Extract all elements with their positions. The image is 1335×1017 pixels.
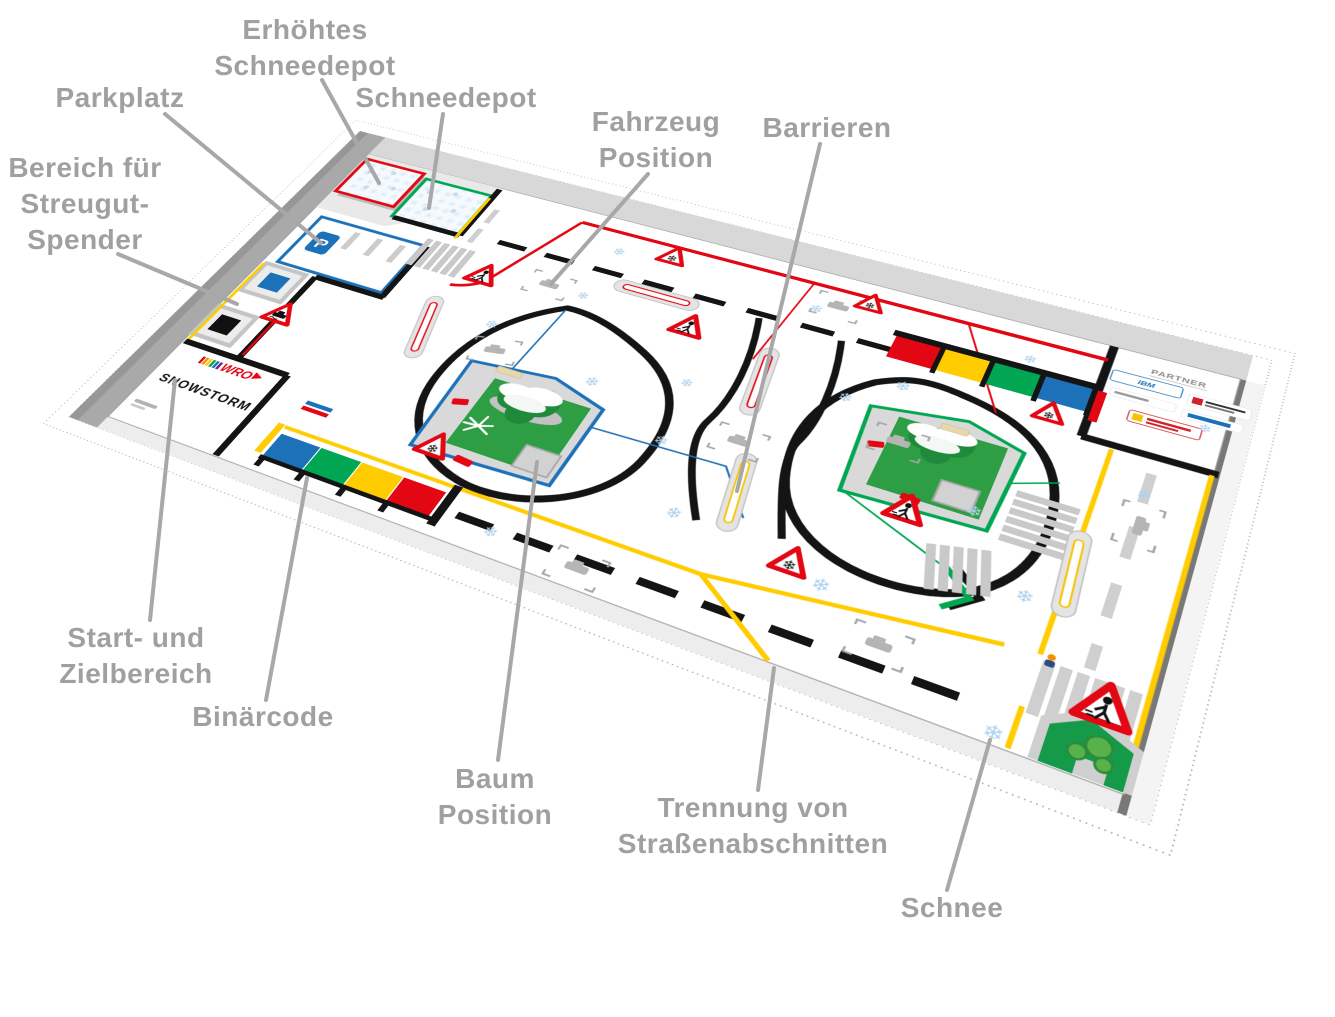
leader-line-schnee — [947, 740, 990, 890]
leader-line-bereich-streugut — [118, 254, 237, 304]
leader-line-barrieren — [737, 144, 820, 491]
callout-baum-position: Baum Position — [438, 761, 552, 833]
leader-line-parkplatz — [165, 114, 321, 243]
leader-line-trennung — [758, 668, 774, 790]
leader-line-start-ziel — [150, 380, 175, 620]
leader-line-baum-position — [498, 462, 537, 760]
callout-start-ziel: Start- und Zielbereich — [59, 620, 212, 692]
callout-erhoehtes-schneedepot: Erhöhtes Schneedepot — [214, 12, 395, 84]
callout-schneedepot: Schneedepot — [355, 80, 536, 116]
callout-trennung: Trennung von Straßenabschnitten — [618, 790, 888, 862]
callout-fahrzeug-position: Fahrzeug Position — [592, 104, 720, 176]
diagram-stage: ❄ ❄ ❄ ❄ ❄ ❄ ❄ ❄ P — [0, 0, 1335, 1017]
callout-binaercode: Binärcode — [192, 699, 333, 735]
leader-line-binaercode — [266, 478, 307, 700]
callout-parkplatz: Parkplatz — [56, 80, 185, 116]
callout-barrieren: Barrieren — [762, 110, 891, 146]
callout-schnee: Schnee — [901, 890, 1004, 926]
leader-line-fahrzeug-position — [551, 174, 648, 284]
callout-bereich-streugut: Bereich für Streugut- Spender — [8, 150, 161, 258]
leader-line-schneedepot — [429, 114, 443, 208]
